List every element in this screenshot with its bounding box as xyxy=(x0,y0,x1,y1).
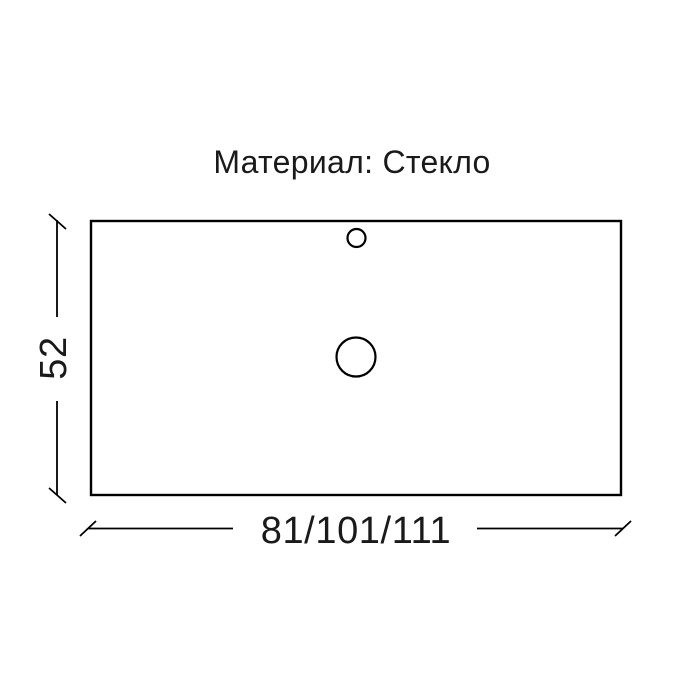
width-dimension-label: 81/101/111 xyxy=(261,510,452,552)
height-dimension-label: 52 xyxy=(33,336,75,379)
faucet-hole-circle xyxy=(348,229,366,247)
technical-drawing-canvas: Материал: Стекло 52 81/101/111 xyxy=(0,0,700,700)
material-title: Материал: Стекло xyxy=(213,144,490,180)
countertop-outline xyxy=(91,221,621,495)
technical-drawing-page: Материал: Стекло 52 81/101/111 xyxy=(0,0,700,700)
drain-hole-circle xyxy=(337,338,376,377)
